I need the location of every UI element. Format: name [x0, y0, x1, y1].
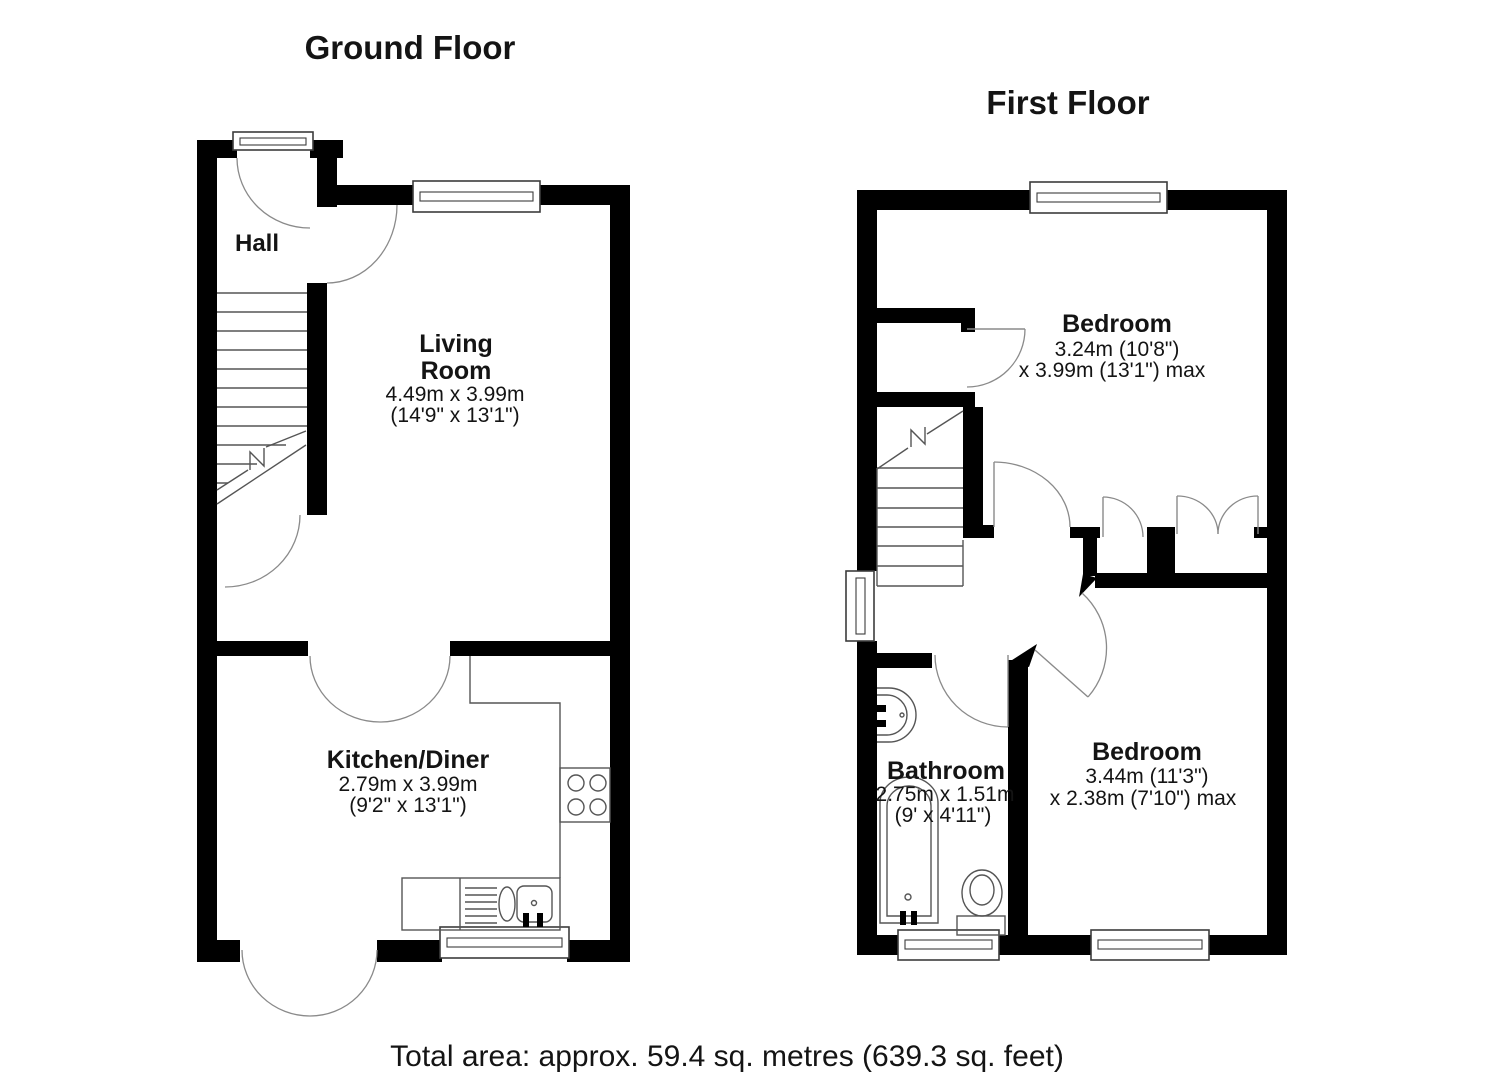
total-area-text: Total area: approx. 59.4 sq. metres (639…: [390, 1040, 1064, 1073]
bedroom1-label: Bedroom 3.24m (10'8") x 3.99m (13'1") ma…: [1019, 310, 1206, 382]
living-room-label: Living Room 4.49m x 3.99m (14'9" x 13'1"…: [386, 330, 525, 427]
overstairs-cupboard-door: [967, 329, 1025, 387]
ground-floor-walls: [197, 140, 630, 962]
svg-text:Bedroom: Bedroom: [1092, 738, 1202, 766]
svg-text:Kitchen/Diner: Kitchen/Diner: [327, 746, 490, 774]
front-door-swing: [237, 158, 310, 228]
living-room-window: [413, 181, 540, 212]
first-floor-walls: [857, 190, 1287, 955]
ground-floor-title: Ground Floor: [305, 29, 516, 66]
bedroom1-door: [994, 462, 1070, 527]
svg-text:x 2.38m (7'10") max: x 2.38m (7'10") max: [1050, 787, 1237, 810]
bathroom-label: Bathroom 2.75m x 1.51m (9' x 4'11"): [876, 757, 1015, 827]
ground-floor-plan: Ground Floor: [197, 29, 630, 1016]
bedroom2-door: [1035, 593, 1107, 697]
landing-window: [846, 571, 874, 641]
svg-text:3.24m (10'8"): 3.24m (10'8"): [1055, 338, 1180, 361]
svg-text:(9'2" x 13'1"): (9'2" x 13'1"): [349, 794, 466, 817]
svg-text:2.75m x 1.51m: 2.75m x 1.51m: [876, 783, 1015, 806]
svg-text:2.79m x 3.99m: 2.79m x 3.99m: [339, 773, 478, 796]
french-doors-swing: [242, 950, 377, 1016]
kitchen-double-door-swing: [310, 656, 450, 722]
svg-text:Bathroom: Bathroom: [887, 757, 1005, 785]
bedroom1-window: [1030, 182, 1167, 213]
stair-break-mark: [911, 427, 925, 447]
svg-text:(14'9" x 13'1"): (14'9" x 13'1"): [390, 404, 519, 427]
wardrobe-double-doors: [1177, 496, 1258, 534]
svg-text:Bedroom: Bedroom: [1062, 310, 1172, 338]
front-door: [233, 132, 313, 228]
first-floor-plan: First Floor: [846, 84, 1287, 960]
bathroom-door: [935, 655, 1008, 727]
bedroom2-window: [1091, 930, 1209, 960]
svg-text:4.49m x 3.99m: 4.49m x 3.99m: [386, 383, 525, 406]
first-floor-title: First Floor: [986, 84, 1149, 121]
bedroom2-label: Bedroom 3.44m (11'3") x 2.38m (7'10") ma…: [1050, 738, 1237, 810]
kitchen-sink: [465, 886, 552, 927]
toilet: [957, 870, 1005, 935]
cupboard-single-door: [1103, 497, 1143, 537]
floorplan-canvas: Ground Floor: [0, 0, 1485, 1080]
bathroom-basin: [874, 688, 916, 742]
svg-text:(9' x 4'11"): (9' x 4'11"): [895, 804, 992, 827]
svg-text:x 3.99m (13'1") max: x 3.99m (13'1") max: [1019, 359, 1206, 382]
svg-text:Room: Room: [421, 357, 492, 385]
kitchen-window: [440, 927, 569, 958]
hall-living-door-swing: [327, 205, 397, 283]
svg-text:3.44m (11'3"): 3.44m (11'3"): [1085, 765, 1208, 788]
kitchen-label: Kitchen/Diner 2.79m x 3.99m (9'2" x 13'1…: [327, 746, 490, 817]
svg-text:Living: Living: [419, 330, 493, 358]
hob: [560, 768, 610, 822]
understairs-door-swing: [225, 515, 300, 587]
hall-label: Hall: [235, 230, 279, 257]
stair-break-mark: [250, 448, 264, 470]
staircase-ground: [217, 293, 307, 504]
staircase-first: [877, 411, 963, 586]
